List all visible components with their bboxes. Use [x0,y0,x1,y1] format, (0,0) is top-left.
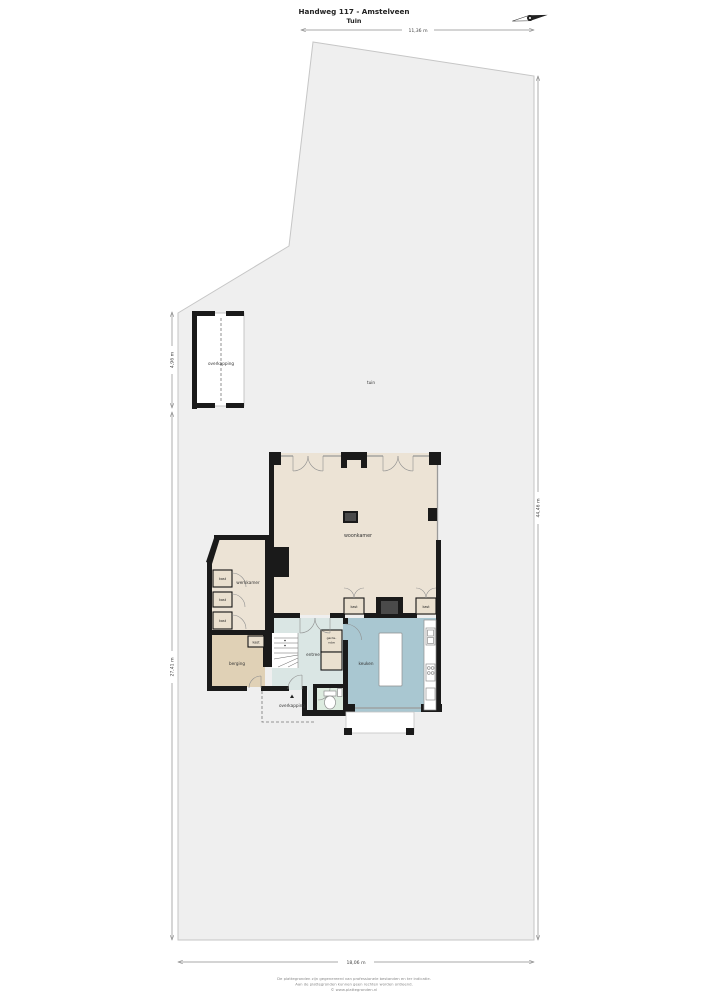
footer-disclaimer-line1: De plattegronden zijn gegenereerd van pr… [277,976,431,981]
floorplan-page: { "header": { "title": "Handweg 117 - Am… [0,0,707,1000]
room-label-keuken: keuken [358,661,373,666]
page-subtitle: Tuin [347,17,362,25]
dimension-top-label: 11,36 m [408,28,428,34]
room-label-woonkamer: woonkamer [344,533,372,539]
room-label-tuin: tuin [367,380,375,385]
north-compass-icon [512,12,548,24]
dimension-right: 44,46 m [535,76,542,940]
toilet-bowl [325,696,336,709]
kitchen-island [379,633,402,686]
dimension-left-upper-label: 4,96 m [170,351,176,368]
closet-label: kast [422,605,430,609]
dimension-bottom: 18,06 m [178,959,534,966]
room-label-overkapping-top: overkapping [208,361,234,366]
floorplan-canvas: Handweg 117 - Amstelveen Tuin 11,36 m 44… [0,0,707,1000]
wardrobe-label: garde- [327,636,337,640]
closet-label: kast [219,598,227,602]
closet-label: kast [350,605,358,609]
dimension-bottom-label: 18,06 m [346,960,366,966]
room-label-werkkamer: werkkamer [236,580,260,585]
dimension-left-lower: 27,41 m [169,412,176,940]
room-label-overkapping-bottom: overkapping [279,703,305,708]
terrace [344,712,414,735]
toilet-tank [324,691,336,696]
wardrobe-label: robe [328,641,335,645]
page-title: Handweg 117 - Amstelveen [299,7,410,16]
footer-disclaimer-line2: Aan de plattegronden kunnen geen rechten… [295,982,413,987]
room-label-entree: entree [306,652,320,657]
footer-copyright: © www.plattegronden.nl [331,987,378,992]
wardrobe-box [321,652,342,670]
closet-label: kast [219,619,227,623]
dimension-left-upper: 4,96 m [169,312,176,408]
toilet-sink [338,689,343,697]
dimension-top: 11,36 m [301,27,534,34]
room-label-berging: berging [229,661,245,666]
dimension-left-lower-label: 27,41 m [170,657,176,677]
dimension-right-label: 44,46 m [536,498,542,518]
closet-label: kast [219,577,227,581]
closet-label: kast [252,641,260,645]
carport-overkapping: overkapping [192,311,244,409]
